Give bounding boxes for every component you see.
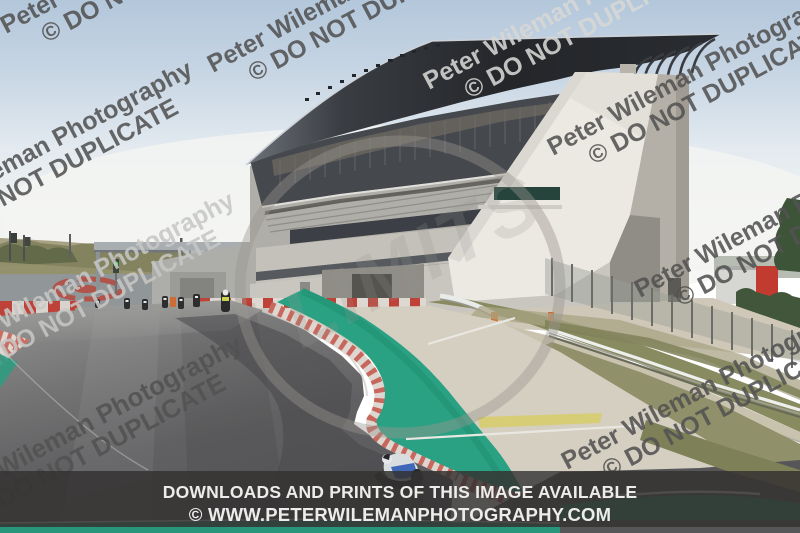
svg-text:© WWW.PETERWILEMANPHOTOGRAPHY.: © WWW.PETERWILEMANPHOTOGRAPHY.COM — [189, 504, 611, 525]
svg-text:DOWNLOADS AND PRINTS OF THIS I: DOWNLOADS AND PRINTS OF THIS IMAGE AVAIL… — [163, 482, 637, 502]
